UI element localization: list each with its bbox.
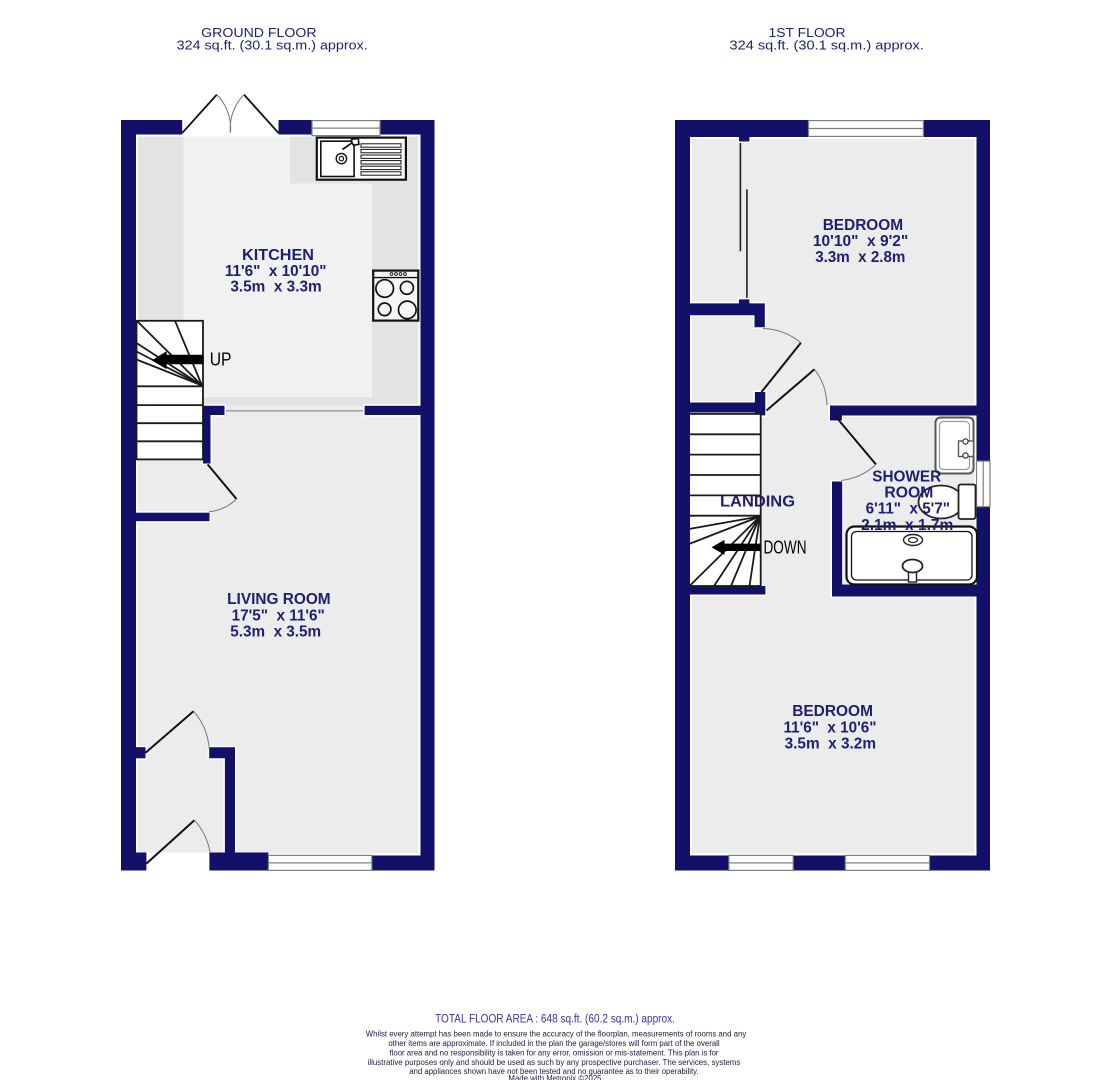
svg-text:BEDROOM: BEDROOM <box>792 703 873 720</box>
svg-text:2.1m x 1.7m: 2.1m x 1.7m <box>861 517 953 534</box>
svg-text:UP: UP <box>210 349 232 370</box>
svg-text:3.5m x 3.3m: 3.5m x 3.3m <box>230 279 321 296</box>
svg-text:illustrative purposes only and: illustrative purposes only and should be… <box>368 1058 741 1067</box>
svg-text:324 sq.ft. (30.1 sq.m.) approx: 324 sq.ft. (30.1 sq.m.) approx. <box>730 38 924 53</box>
svg-text:11'6" x 10'6": 11'6" x 10'6" <box>783 719 876 736</box>
svg-text:11'6" x 10'10": 11'6" x 10'10" <box>225 263 327 280</box>
svg-text:6'11" x 5'7": 6'11" x 5'7" <box>866 501 950 518</box>
svg-text:Made with Metropix ©2025: Made with Metropix ©2025 <box>508 1074 602 1080</box>
svg-text:TOTAL FLOOR AREA : 648 sq.ft.: TOTAL FLOOR AREA : 648 sq.ft. (60.2 sq.m… <box>435 1014 675 1026</box>
svg-text:3.3m x 2.8m: 3.3m x 2.8m <box>815 249 905 266</box>
svg-text:17'5" x 11'6": 17'5" x 11'6" <box>232 607 325 624</box>
svg-text:5.3m x 3.5m: 5.3m x 3.5m <box>230 624 321 641</box>
svg-text:other items are approximate. I: other items are approximate. If included… <box>388 1039 720 1048</box>
svg-text:Whilst every attempt has been: Whilst every attempt has been made to en… <box>366 1029 747 1038</box>
svg-text:LANDING: LANDING <box>720 494 795 511</box>
svg-text:SHOWER: SHOWER <box>872 468 941 485</box>
svg-text:ROOM: ROOM <box>884 485 933 502</box>
svg-text:3.5m x 3.2m: 3.5m x 3.2m <box>785 736 876 753</box>
svg-text:LIVING ROOM: LIVING ROOM <box>227 591 331 608</box>
svg-text:floor area and no responsibili: floor area and no responsibility is take… <box>390 1048 719 1057</box>
svg-text:BEDROOM: BEDROOM <box>823 217 903 234</box>
svg-text:324 sq.ft. (30.1 sq.m.) approx: 324 sq.ft. (30.1 sq.m.) approx. <box>177 38 368 53</box>
svg-text:10'10" x 9'2": 10'10" x 9'2" <box>813 233 908 250</box>
svg-text:DOWN: DOWN <box>764 537 807 558</box>
svg-text:KITCHEN: KITCHEN <box>242 247 314 264</box>
